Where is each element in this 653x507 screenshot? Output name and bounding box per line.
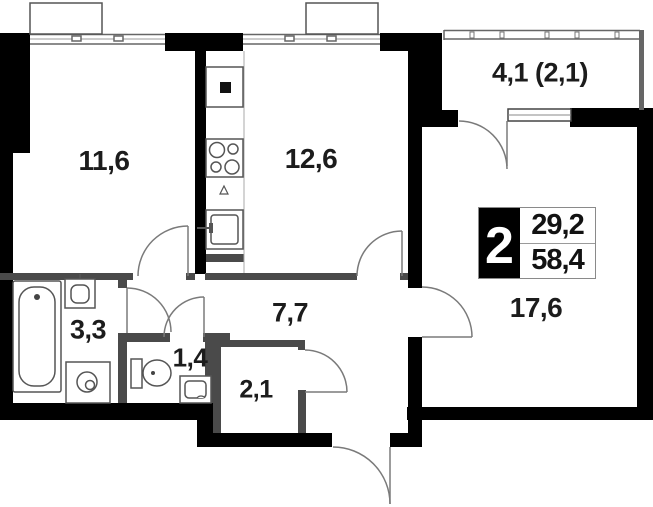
total-area-value: 58,4 — [520, 243, 595, 279]
wall — [400, 273, 408, 280]
apartment-info-badge: 2 29,2 58,4 — [478, 207, 596, 279]
area-values: 29,2 58,4 — [520, 208, 595, 278]
wall — [570, 108, 653, 127]
wall — [380, 33, 442, 51]
door-loggia — [459, 121, 507, 169]
wall — [298, 340, 305, 350]
door-kitchen — [357, 231, 402, 276]
floor-plan: 11,6 12,6 4,1 (2,1) 17,6 7,7 3,3 1,4 2,1… — [0, 0, 653, 507]
wc-sink-icon — [180, 376, 211, 403]
bathtub-icon — [13, 281, 61, 392]
window-living-loggia — [508, 109, 571, 121]
wall — [408, 337, 422, 447]
door-wc — [164, 297, 204, 337]
wall — [213, 340, 221, 433]
area-label-living-room: 17,6 — [510, 292, 563, 324]
wall — [197, 403, 213, 447]
stove-icon — [206, 139, 243, 177]
wall — [637, 127, 653, 420]
wall — [165, 33, 243, 51]
area-label-bathroom: 3,3 — [70, 315, 106, 346]
wall — [213, 433, 332, 447]
loggia-glazing — [444, 28, 640, 41]
wall — [213, 340, 305, 347]
area-label-storage: 2,1 — [239, 376, 272, 405]
bathroom-sink-icon — [65, 274, 95, 308]
door-living-room — [422, 287, 472, 337]
toilet-icon — [131, 359, 171, 388]
wall — [205, 273, 357, 280]
area-label-kitchen: 12,6 — [285, 143, 338, 175]
door-room-11-6 — [138, 226, 188, 276]
wall — [408, 110, 458, 127]
area-label-room-11-6: 11,6 — [79, 145, 130, 177]
wall — [0, 33, 30, 153]
fridge-icon — [206, 67, 243, 107]
area-label-hall: 7,7 — [272, 298, 308, 329]
balcony-slab-outline-right — [306, 3, 378, 34]
wall — [298, 390, 306, 433]
living-area-value: 29,2 — [520, 208, 595, 243]
wall — [118, 333, 170, 342]
rooms-count: 2 — [479, 208, 520, 278]
area-label-loggia: 4,1 (2,1) — [492, 58, 588, 89]
wall — [407, 407, 653, 420]
wall — [118, 342, 127, 403]
washing-machine-icon — [66, 362, 110, 403]
kitchen-counter-end — [206, 254, 244, 262]
wall — [408, 127, 422, 288]
window-room-11-6 — [30, 33, 165, 45]
wall — [195, 50, 206, 274]
fixtures — [13, 274, 211, 403]
entrance-door — [333, 447, 390, 504]
loggia-side-wall — [639, 30, 644, 110]
area-label-wc: 1,4 — [173, 343, 208, 374]
counter-drain-icon — [220, 186, 228, 194]
wall — [390, 433, 422, 447]
door-bathroom — [127, 288, 171, 333]
door-storage — [305, 350, 347, 392]
wall — [0, 403, 213, 420]
wall — [118, 280, 127, 288]
wall — [0, 150, 13, 420]
balcony-slab-outline-left — [30, 3, 102, 34]
window-kitchen — [243, 33, 380, 45]
